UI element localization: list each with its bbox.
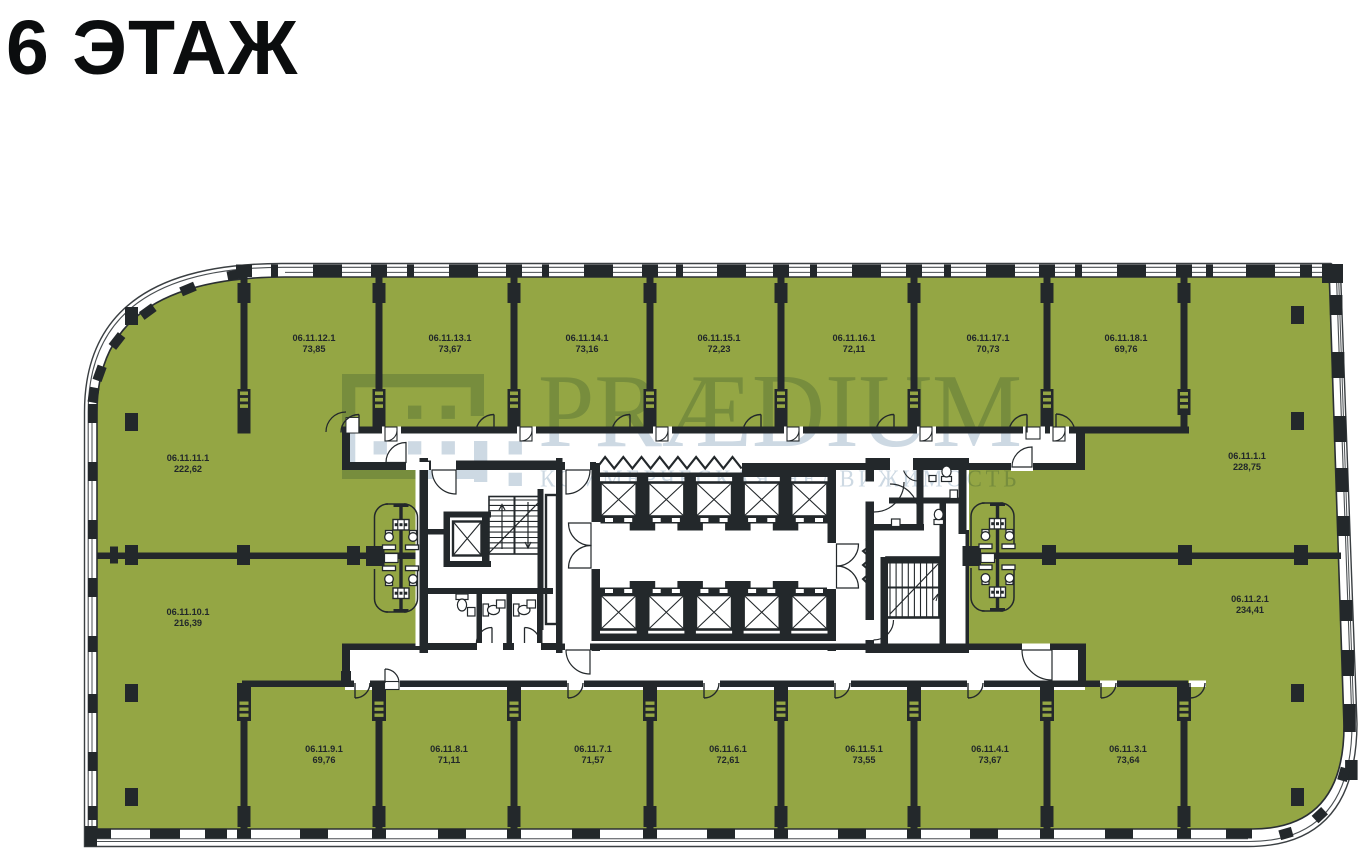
svg-text:6 ЭТАЖ: 6 ЭТАЖ (6, 5, 298, 91)
svg-text:06.11.1.1228,75: 06.11.1.1228,75 (1228, 451, 1266, 472)
svg-text:06.11.2.1234,41: 06.11.2.1234,41 (1231, 594, 1269, 615)
